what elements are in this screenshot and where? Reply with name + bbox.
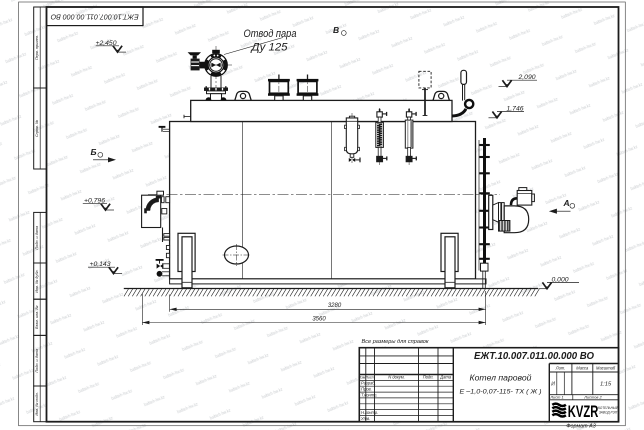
svg-text:3560: 3560	[312, 316, 326, 322]
svg-text:Котел паровой: Котел паровой	[470, 373, 533, 382]
svg-text:В: В	[333, 25, 339, 35]
svg-text:Перв. примен.: Перв. примен.	[35, 35, 39, 60]
svg-text:Листов 2: Листов 2	[583, 395, 602, 400]
svg-text:1:15: 1:15	[600, 382, 612, 388]
svg-text:Справ. №: Справ. №	[35, 120, 39, 137]
svg-text:ЕЖТ.10.007.011.00.000 ВО: ЕЖТ.10.007.011.00.000 ВО	[474, 351, 594, 362]
svg-text:Пров.: Пров.	[361, 387, 372, 392]
svg-text:Н.контр.: Н.контр.	[361, 410, 378, 415]
svg-text:Ду 125: Ду 125	[249, 42, 288, 54]
svg-text:Отвод пара: Отвод пара	[244, 28, 297, 40]
svg-text:0,000: 0,000	[552, 277, 569, 284]
svg-text:КОТЕЛЬНЫЙ: КОТЕЛЬНЫЙ	[598, 406, 619, 410]
svg-text:Инв. № дубл.: Инв. № дубл.	[35, 269, 39, 292]
svg-text:1,746: 1,746	[507, 106, 524, 113]
svg-text:А: А	[563, 198, 570, 208]
svg-text:3280: 3280	[328, 303, 342, 309]
svg-text:Т.контр.: Т.контр.	[361, 392, 378, 397]
svg-text:Масштаб: Масштаб	[596, 366, 616, 371]
svg-text:ЗАВОД РЭП: ЗАВОД РЭП	[599, 411, 618, 415]
svg-text:Взам. инв. №: Взам. инв. №	[35, 306, 39, 329]
svg-text:KVZR: KVZR	[568, 403, 599, 421]
svg-text:+2,450: +2,450	[96, 40, 117, 47]
svg-text:Лит.: Лит.	[555, 366, 566, 371]
svg-text:N докум.: N докум.	[388, 375, 405, 380]
svg-text:Лист 1: Лист 1	[549, 395, 563, 400]
svg-text:Подп. и дата: Подп. и дата	[35, 349, 39, 373]
svg-text:ЕЖТ.10.007.011.00.000 ВО: ЕЖТ.10.007.011.00.000 ВО	[50, 12, 138, 21]
svg-text:Е –1,0-0,07-115- ТХ ( Ж ): Е –1,0-0,07-115- ТХ ( Ж )	[460, 389, 542, 396]
svg-text:Масса: Масса	[576, 366, 589, 371]
svg-text:Разраб.: Разраб.	[361, 381, 376, 386]
svg-text:Дата: Дата	[439, 375, 452, 380]
svg-text:Все размеры для справок: Все размеры для справок	[362, 339, 429, 345]
svg-text:+0,143: +0,143	[90, 261, 111, 268]
svg-text:2,090: 2,090	[518, 74, 536, 81]
svg-text:Лист: Лист	[364, 376, 374, 380]
svg-text:И: И	[551, 381, 555, 387]
svg-text:Подп. и дата: Подп. и дата	[35, 226, 39, 250]
svg-text:Формат А3: Формат А3	[566, 423, 596, 429]
svg-text:Подп.: Подп.	[423, 375, 434, 380]
svg-text:Инв. № подл.: Инв. № подл.	[35, 392, 39, 416]
svg-text:Утв.: Утв.	[361, 416, 370, 421]
svg-text:Б: Б	[91, 147, 97, 157]
svg-text:+0,796: +0,796	[84, 198, 105, 205]
